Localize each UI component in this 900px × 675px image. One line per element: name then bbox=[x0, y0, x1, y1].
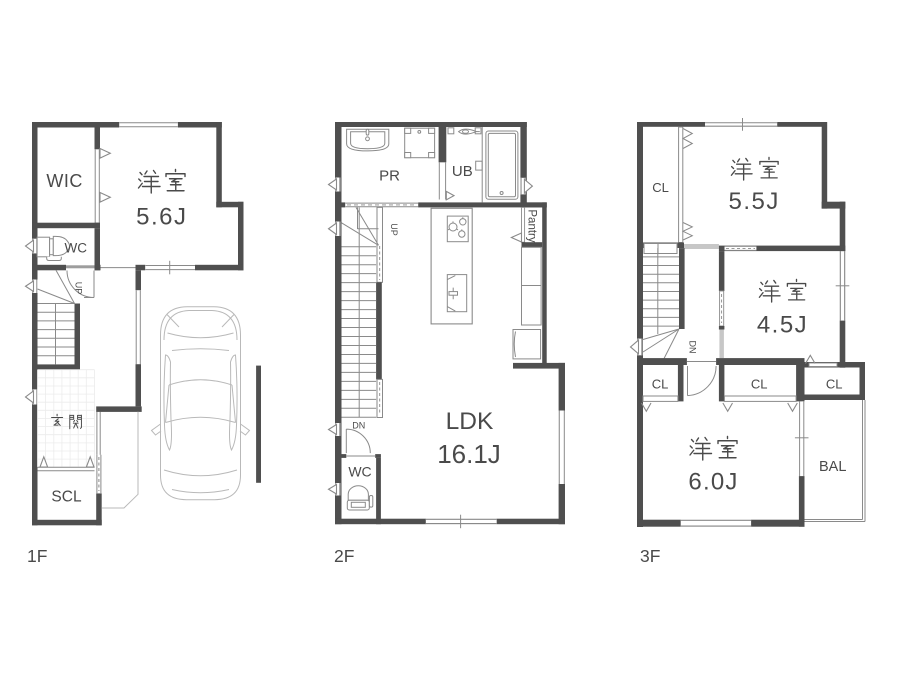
svg-text:2F: 2F bbox=[334, 546, 354, 566]
svg-text:WC: WC bbox=[348, 464, 371, 480]
svg-text:SCL: SCL bbox=[51, 489, 82, 506]
svg-text:WIC: WIC bbox=[46, 171, 83, 191]
svg-text:PR: PR bbox=[379, 168, 400, 185]
svg-text:16.1J: 16.1J bbox=[437, 439, 501, 469]
svg-text:6.0J: 6.0J bbox=[688, 469, 738, 496]
svg-text:1F: 1F bbox=[27, 546, 47, 566]
svg-text:UP: UP bbox=[389, 223, 399, 236]
svg-text:CL: CL bbox=[652, 180, 669, 195]
svg-text:WC: WC bbox=[65, 240, 88, 255]
svg-text:DN: DN bbox=[352, 420, 365, 430]
svg-text:LDK: LDK bbox=[446, 408, 494, 435]
svg-text:UB: UB bbox=[452, 163, 473, 180]
svg-text:5.5J: 5.5J bbox=[729, 188, 780, 215]
svg-text:CL: CL bbox=[751, 377, 768, 392]
svg-text:Pantry: Pantry bbox=[526, 209, 538, 242]
svg-text:3F: 3F bbox=[640, 546, 660, 566]
svg-text:5.6J: 5.6J bbox=[136, 204, 187, 231]
svg-text:DN: DN bbox=[688, 341, 698, 354]
svg-text:UP: UP bbox=[74, 282, 84, 295]
svg-text:4.5J: 4.5J bbox=[757, 312, 808, 339]
svg-text:BAL: BAL bbox=[819, 459, 846, 475]
svg-text:CL: CL bbox=[826, 377, 843, 392]
svg-text:CL: CL bbox=[652, 377, 669, 392]
